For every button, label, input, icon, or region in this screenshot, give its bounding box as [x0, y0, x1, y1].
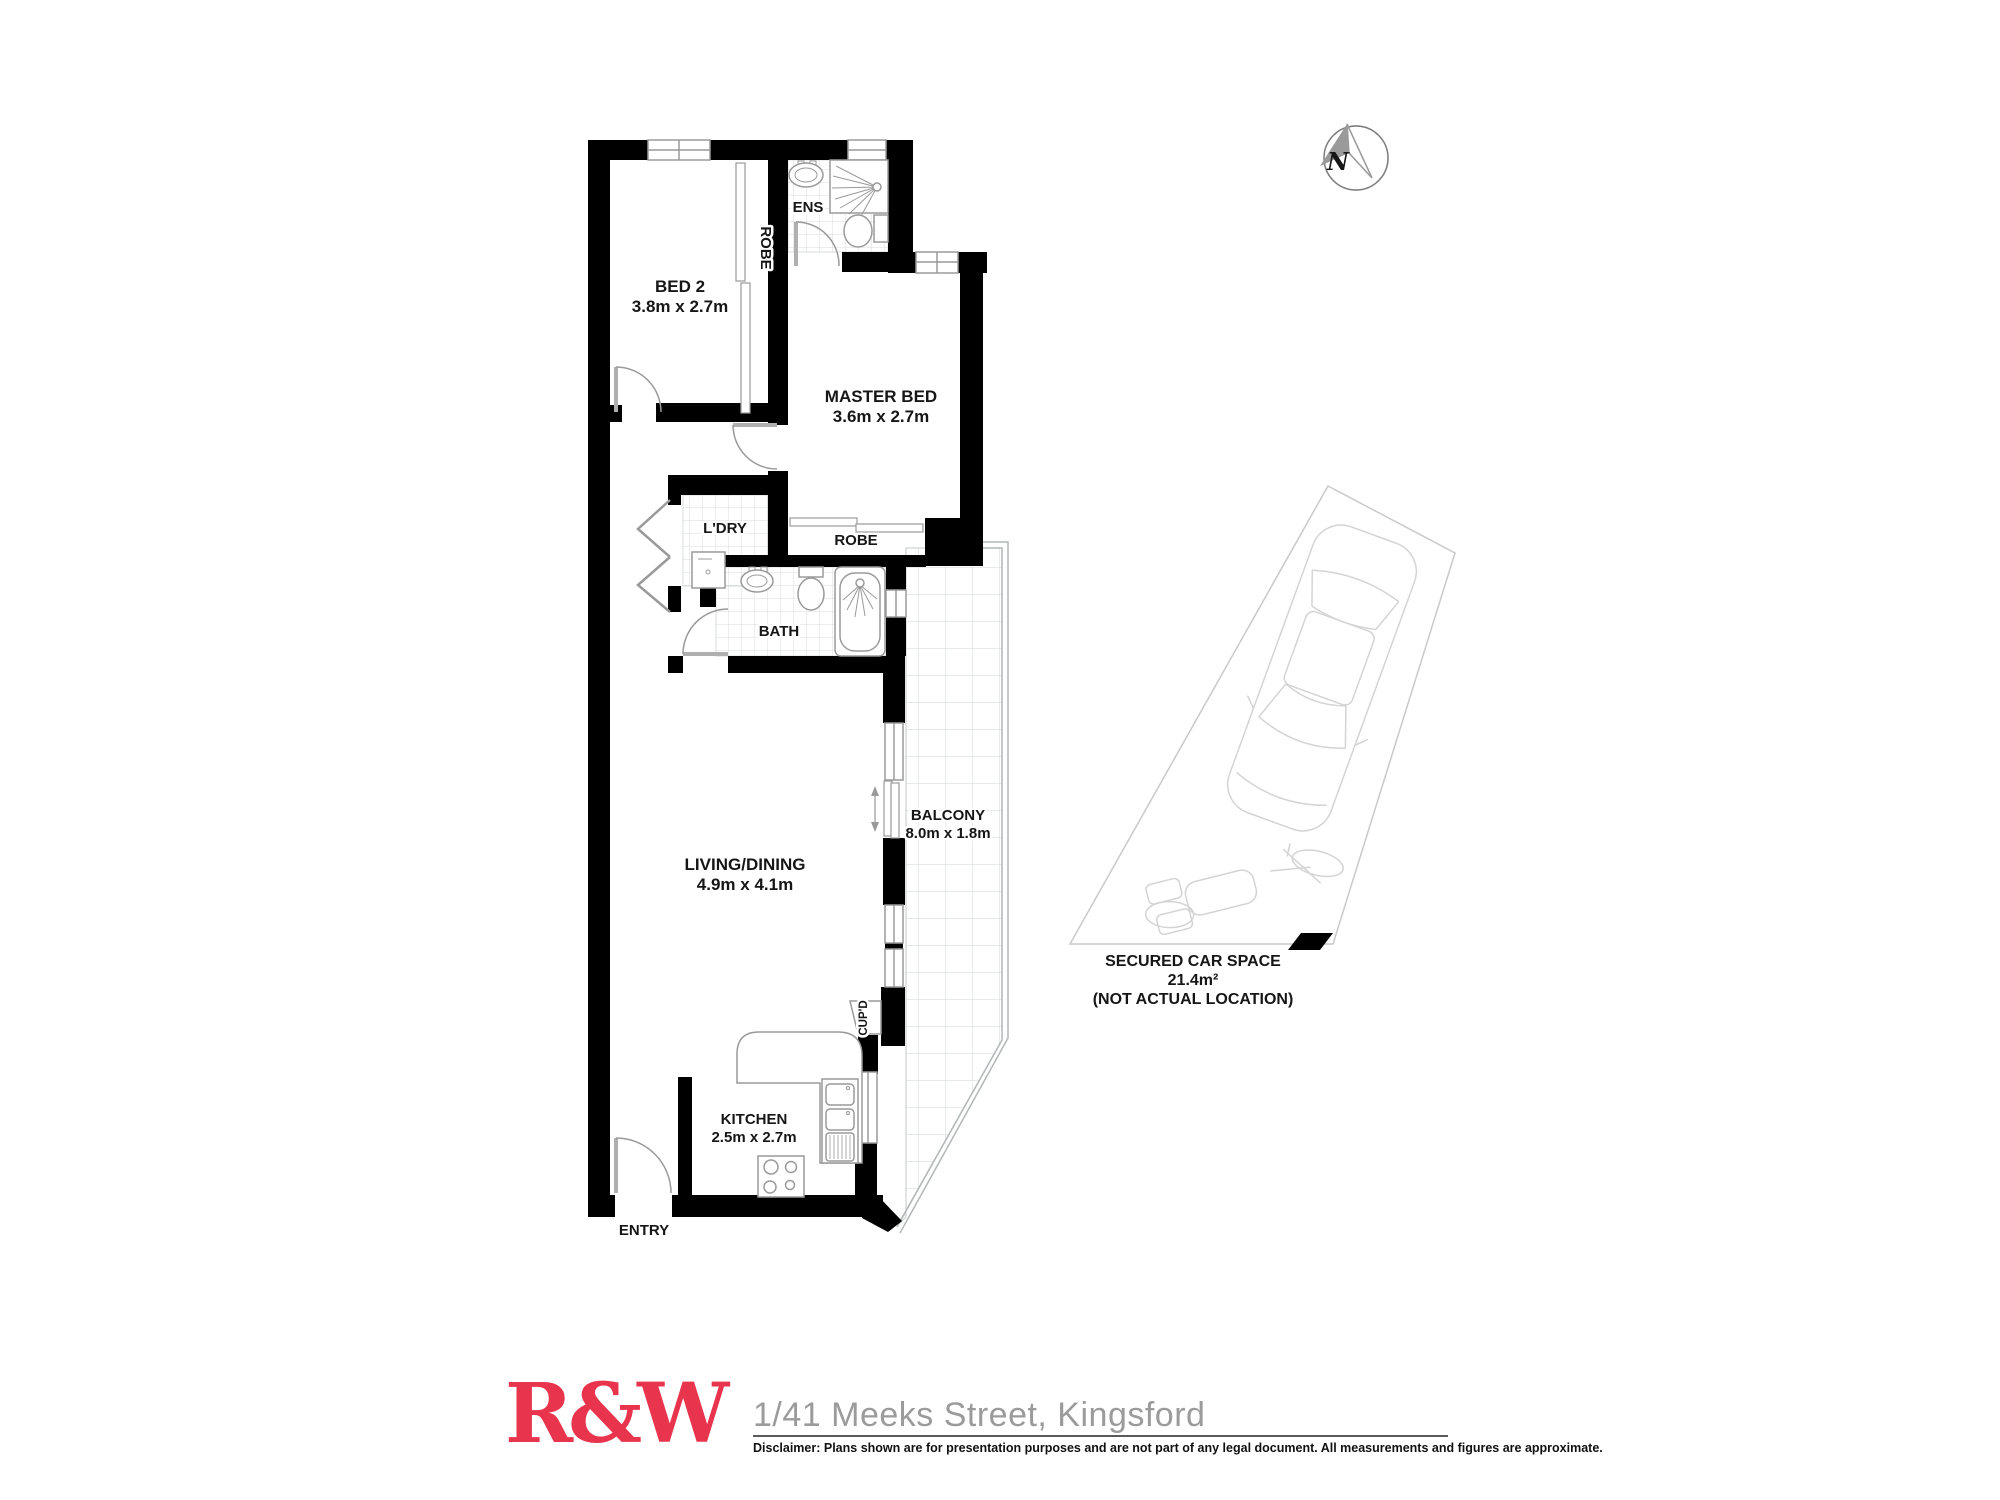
- kitchen-dims: 2.5m x 2.7m: [711, 1129, 796, 1146]
- ens-label: ENS: [793, 199, 824, 216]
- disclaimer-text: Disclaimer: Plans shown are for presenta…: [753, 1441, 1453, 1455]
- bath-label: BATH: [759, 623, 800, 640]
- balcony-dims: 8.0m x 1.8m: [905, 825, 990, 842]
- laundry-bifold-doors: [638, 500, 670, 612]
- master-window: [916, 252, 958, 273]
- stove-icon: [758, 1156, 804, 1197]
- bed2-door: [616, 367, 661, 412]
- living-label: LIVING/DINING: [685, 855, 806, 874]
- footer-divider-line: [753, 1435, 1448, 1437]
- bed2-robe-label: ROBE: [757, 226, 774, 269]
- entry-label: ENTRY: [619, 1222, 669, 1239]
- floorplan-drawing: N BED 2 3.8m x 2.7m ROBE ENS MASTER BED …: [0, 0, 2000, 1500]
- kitchen-sink-icon: [822, 1079, 858, 1163]
- balcony-slider-door: [871, 781, 899, 838]
- car-space-note: (NOT ACTUAL LOCATION): [1093, 991, 1294, 1008]
- living-window-3: [885, 949, 903, 987]
- entry-door: [616, 1138, 671, 1193]
- master-door: [733, 425, 777, 469]
- north-compass-icon: N: [1320, 124, 1388, 190]
- north-label: N: [1326, 147, 1350, 176]
- balcony-label: BALCONY: [911, 807, 985, 824]
- bed2-label: BED 2: [655, 277, 705, 296]
- property-address: 1/41 Meeks Street, Kingsford: [753, 1398, 1453, 1432]
- bath-toilet-icon: [798, 567, 824, 610]
- living-window-2: [885, 905, 903, 943]
- bed2-robe-slider: [736, 163, 750, 413]
- car-space-title: SECURED CAR SPACE: [1105, 953, 1281, 970]
- living-dims: 4.9m x 4.1m: [697, 875, 793, 894]
- master-robe-label: ROBE: [834, 532, 877, 549]
- car-space: [1070, 486, 1455, 950]
- ens-window: [848, 140, 886, 160]
- kitchen-label: KITCHEN: [721, 1111, 788, 1128]
- master-label: MASTER BED: [825, 387, 937, 406]
- cupboard-label: CUP'D: [858, 1000, 870, 1035]
- laundry-label: L'DRY: [703, 520, 747, 537]
- ens-toilet-icon: [844, 215, 888, 247]
- washing-machine-icon: [692, 552, 725, 588]
- ens-shower-icon: [830, 160, 888, 218]
- living-window-1: [885, 723, 903, 780]
- car-space-area: 21.4m²: [1168, 972, 1219, 989]
- bed2-dims: 3.8m x 2.7m: [632, 297, 728, 316]
- floorplan-page: N BED 2 3.8m x 2.7m ROBE ENS MASTER BED …: [0, 0, 2000, 1500]
- rw-logo: R&W: [505, 1378, 725, 1450]
- bath-window: [886, 590, 906, 617]
- bathtub-shower-icon: [835, 567, 885, 656]
- master-dims: 3.6m x 2.7m: [833, 407, 929, 426]
- balcony-tiles: [897, 548, 1002, 1226]
- master-robe-slider: [790, 518, 923, 532]
- bed2-window: [648, 140, 710, 160]
